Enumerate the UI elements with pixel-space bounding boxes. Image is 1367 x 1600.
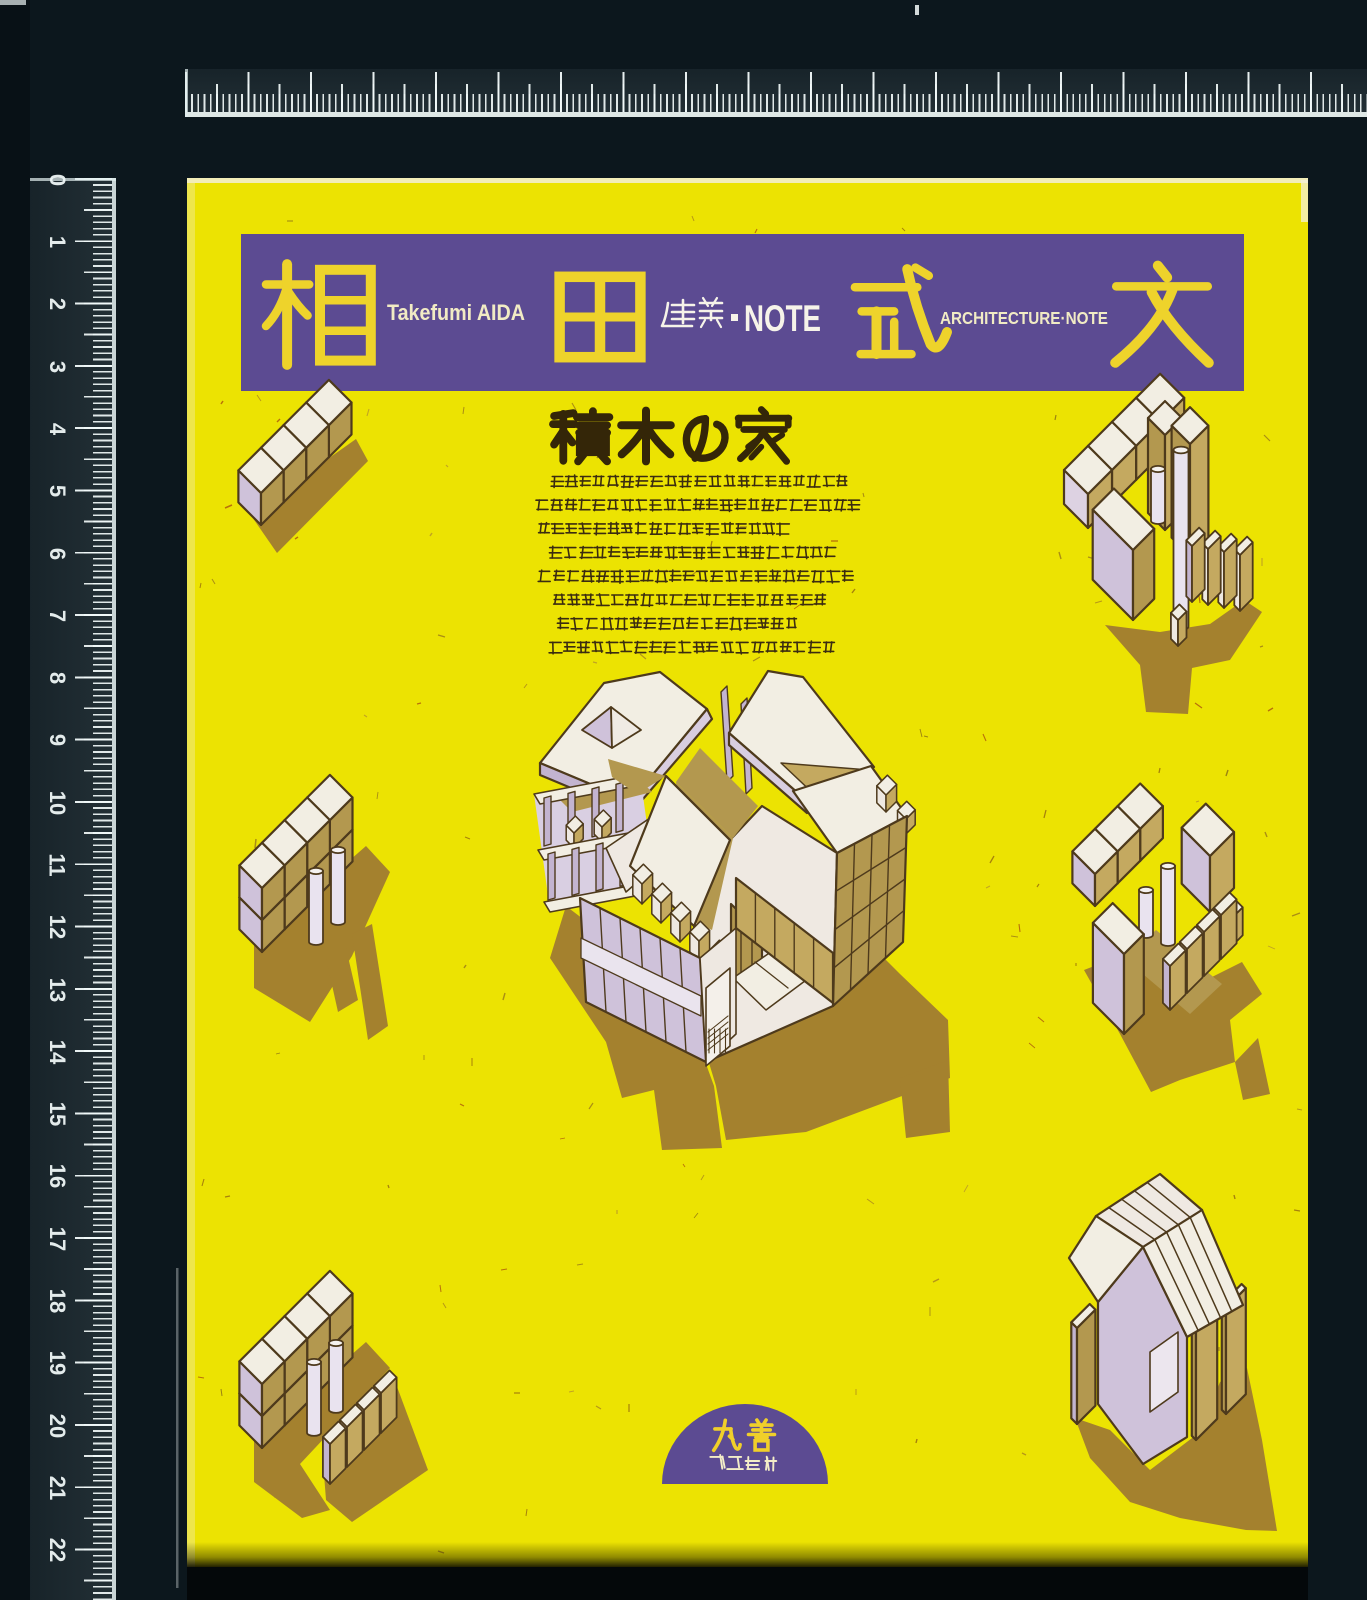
svg-text:Takefumi AIDA: Takefumi AIDA xyxy=(387,300,525,325)
svg-text:ARCHITECTURE·NOTE: ARCHITECTURE·NOTE xyxy=(940,308,1108,328)
svg-text:NOTE: NOTE xyxy=(744,298,821,339)
